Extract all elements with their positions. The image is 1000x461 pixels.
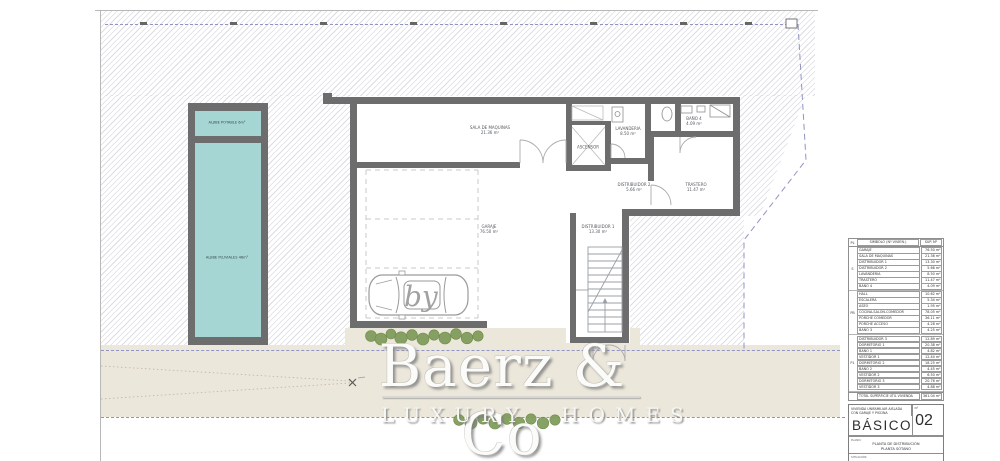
total-label: TOTAL SUPERFICIE ÚTIL VIVIENDA bbox=[857, 393, 920, 400]
label-bano-4: BAÑO 44.09 m² bbox=[686, 116, 702, 126]
room-name-cell: BAÑO 4 bbox=[857, 283, 920, 290]
table-row: VESTIDOR 34.88 m² bbox=[856, 384, 943, 390]
header-pl: PL bbox=[849, 241, 856, 245]
room-name-cell: VESTIDOR 3 bbox=[857, 384, 920, 391]
area-table-body: SGARAJE76.50 m²SALA DE MAQUINAS21.36 m²D… bbox=[849, 247, 943, 392]
group-floor-label: S bbox=[849, 248, 856, 290]
label-ascensor: ASCENSOR bbox=[577, 144, 599, 149]
sheet-number: 02 bbox=[913, 412, 935, 430]
boundary-corner-marker bbox=[786, 19, 797, 28]
label-trastero: TRASTERO11.47 m² bbox=[685, 182, 706, 192]
label-lavanderia: LAVANDERIA8.50 m² bbox=[615, 126, 640, 136]
watermark-rule bbox=[382, 396, 640, 398]
label-distribuidor-2: DISTRIBUIDOR 25.66 m² bbox=[618, 182, 651, 192]
table-group: SGARAJE76.50 m²SALA DE MAQUINAS21.36 m²D… bbox=[849, 247, 943, 291]
area-table-total-row: TOTAL SUPERFICIE ÚTIL VIVIENDA 361.04 m² bbox=[849, 392, 943, 401]
stairs-icon bbox=[576, 247, 622, 332]
boundary-ticks bbox=[140, 22, 752, 25]
slope-lines bbox=[101, 366, 350, 399]
room-area-cell: 4.25 m² bbox=[921, 327, 943, 334]
area-table-header: PL SIMBOLO (Nº VIVIEN.) SUP. M² bbox=[849, 239, 943, 247]
project-description: VIVIENDA UNIFAMILIAR AISLADA CON GARAJE … bbox=[849, 405, 912, 416]
title-block: VIVIENDA UNIFAMILIAR AISLADA CON GARAJE … bbox=[848, 404, 944, 461]
floor-plan-sheet: ALJIBE POTABLE 6m² ALJIBE PLUVIALES 46m²… bbox=[0, 0, 1000, 461]
table-row: BAÑO 34.25 m² bbox=[856, 328, 943, 334]
room-area-cell: 4.88 m² bbox=[921, 384, 943, 391]
label-garaje: GARAJE76.50 m² bbox=[480, 224, 498, 234]
table-group: P1DISTRIBUIDOR 312.89 m²DORMITORIO 120.3… bbox=[849, 335, 943, 391]
watermark-tagline: LUXURY HOMES bbox=[381, 403, 681, 427]
sheet-number-label: Nº bbox=[915, 406, 919, 410]
group-floor-label: P1 bbox=[849, 336, 856, 390]
label-aljibe-potable: ALJIBE POTABLE 6m² bbox=[209, 120, 246, 125]
total-value: 361.04 m² bbox=[921, 393, 943, 400]
table-group: PBHALL10.62 m²ESCALERA5.34 m²ASEO1.95 m²… bbox=[849, 291, 943, 335]
label-aljibe-pluviales: ALJIBE PLUVIALES 46m² bbox=[206, 255, 248, 260]
group-floor-label: PB bbox=[849, 292, 856, 334]
bathroom-fixtures bbox=[612, 105, 730, 122]
plan-name-box: PLANO: PLANTA DE DISTRIBUCIÓN PLANTA SÓT… bbox=[849, 436, 943, 453]
elevator-cross-icon bbox=[572, 106, 605, 165]
room-area-cell: 4.09 m² bbox=[921, 283, 943, 290]
door-arcs bbox=[520, 137, 696, 361]
situation-box: SITUACIÓN: bbox=[849, 453, 943, 460]
watermark-by: by bbox=[404, 280, 438, 313]
room-name-cell: BAÑO 3 bbox=[857, 327, 920, 334]
phase-label: BÁSICO bbox=[849, 416, 912, 435]
area-schedule-table: PL SIMBOLO (Nº VIVIEN.) SUP. M² SGARAJE7… bbox=[848, 238, 944, 401]
label-distribuidor-1: DISTRIBUIDOR 113.30 m² bbox=[582, 224, 615, 234]
header-sup: SUP. M² bbox=[920, 239, 942, 246]
table-row: BAÑO 44.09 m² bbox=[856, 284, 943, 290]
setback-line-right bbox=[744, 24, 806, 352]
sheet-number-box: Nº 02 bbox=[912, 405, 935, 435]
header-simbolo: SIMBOLO (Nº VIVIEN.) bbox=[857, 239, 919, 246]
label-sala-de-maquinas: SALA DE MAQUINAS21.36 m² bbox=[470, 125, 510, 135]
